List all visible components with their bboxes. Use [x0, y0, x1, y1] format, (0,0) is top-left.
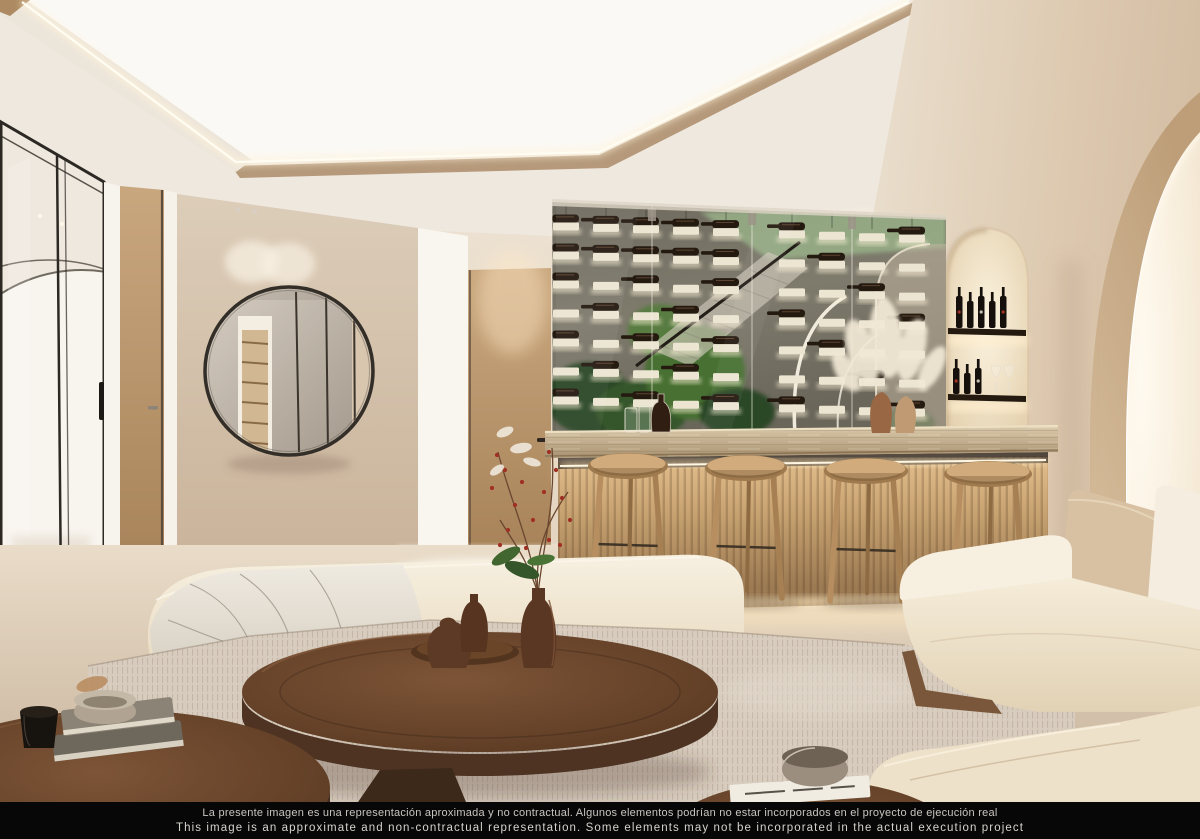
- wine-bottle: [672, 306, 699, 314]
- bottle-peg: [819, 290, 845, 298]
- wine-bottle: [778, 396, 805, 404]
- black-cup: [20, 706, 58, 748]
- wall-pillar: [104, 182, 120, 578]
- bottle-peg: [779, 317, 805, 325]
- wine-bottle: [712, 249, 739, 257]
- wall-jamb: [418, 228, 468, 565]
- render-scene: [0, 0, 1200, 802]
- bottle-peg: [633, 225, 659, 233]
- bottle-peg: [633, 370, 659, 378]
- bottle-peg: [633, 254, 659, 262]
- wine-bottle: [858, 283, 885, 291]
- wood-door-left: [120, 186, 177, 568]
- mirror-ladder-reflection: [242, 330, 268, 456]
- bottle-peg: [779, 375, 805, 383]
- wood-door-pocket: [468, 250, 551, 550]
- wine-bottle: [818, 253, 845, 261]
- bottle-peg: [713, 286, 739, 294]
- bottle-peg: [899, 264, 925, 272]
- bottle-peg: [779, 346, 805, 354]
- bottle-peg: [673, 256, 699, 264]
- wine-bottle: [898, 227, 925, 235]
- bottle-peg: [673, 372, 699, 380]
- bottle-peg: [779, 404, 805, 412]
- bottle-peg: [859, 262, 885, 270]
- wine-bottle: [672, 364, 699, 372]
- partition-handle: [99, 382, 104, 420]
- wine-bottle: [818, 340, 845, 348]
- bottle-peg: [633, 283, 659, 291]
- bottle-peg: [779, 288, 805, 296]
- bottle-peg: [633, 312, 659, 320]
- ceramic-bowl: [782, 746, 848, 787]
- bottle-peg: [673, 285, 699, 293]
- bottle-peg: [819, 232, 845, 240]
- bottle-peg: [859, 291, 885, 299]
- interior-render: La presente imagen es una representación…: [0, 0, 1200, 839]
- wine-bottle: [672, 219, 699, 227]
- bottle-peg: [859, 233, 885, 241]
- bottle-peg: [713, 228, 739, 236]
- wine-bottle: [672, 248, 699, 256]
- wine-bottle: [778, 309, 805, 317]
- disclaimer-text-es: La presente imagen es una representación…: [202, 806, 997, 820]
- stone-bowl: [74, 690, 136, 724]
- disclaimer-text-en: This image is an approximate and non-con…: [176, 821, 1024, 836]
- wine-bottle: [632, 246, 659, 254]
- bottle-peg: [673, 401, 699, 409]
- niche-bottle: [989, 301, 996, 328]
- bottle-peg: [673, 343, 699, 351]
- bottle-peg: [819, 406, 845, 414]
- bottle-peg: [713, 257, 739, 265]
- bottle-peg: [819, 261, 845, 269]
- bottle-peg: [899, 235, 925, 243]
- niche-bottle: [964, 373, 971, 394]
- bottle-peg: [633, 341, 659, 349]
- disclaimer-bar: La presente imagen es una representación…: [0, 802, 1200, 839]
- mirror-wall: [177, 194, 418, 576]
- wine-bottle: [632, 391, 659, 399]
- arched-niche: [946, 228, 1028, 440]
- bottle-peg: [673, 227, 699, 235]
- niche-bottle: [967, 301, 974, 328]
- cushion-white: [1148, 486, 1200, 612]
- wine-bottle: [632, 275, 659, 283]
- wine-bottle: [712, 278, 739, 286]
- wine-bottle: [632, 333, 659, 341]
- bottle-peg: [899, 293, 925, 301]
- wine-bottle: [712, 220, 739, 228]
- door-handle: [148, 406, 158, 410]
- bottle-peg: [819, 319, 845, 327]
- bottle-peg: [673, 314, 699, 322]
